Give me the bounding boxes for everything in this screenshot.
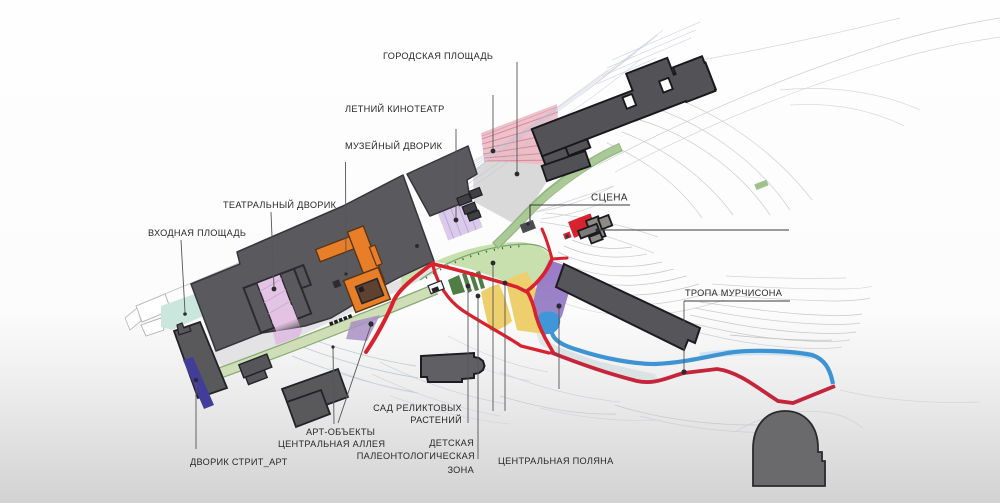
svg-text:МУЗЕЙНЫЙ ДВОРИК: МУЗЕЙНЫЙ ДВОРИК	[345, 140, 443, 151]
svg-text:ДЕТСКАЯ: ДЕТСКАЯ	[429, 438, 474, 448]
svg-text:ТРОПА МУРЧИСОНА: ТРОПА МУРЧИСОНА	[685, 288, 783, 298]
svg-text:ПАЛЕОНТОЛОГИЧЕСКАЯ: ПАЛЕОНТОЛОГИЧЕСКАЯ	[357, 451, 475, 461]
svg-text:ДВОРИК СТРИТ_АРТ: ДВОРИК СТРИТ_АРТ	[190, 457, 288, 467]
svg-text:ЦЕНТРАЛЬНАЯ ПОЛЯНА: ЦЕНТРАЛЬНАЯ ПОЛЯНА	[498, 456, 614, 466]
svg-text:АРТ-ОБЪЕКТЫ: АРТ-ОБЪЕКТЫ	[306, 427, 375, 437]
svg-text:ЛЕТНИЙ КИНОТЕАТР: ЛЕТНИЙ КИНОТЕАТР	[345, 103, 445, 114]
svg-text:ЗОНА: ЗОНА	[447, 465, 474, 475]
svg-text:ГОРОДСКАЯ ПЛОЩАДЬ: ГОРОДСКАЯ ПЛОЩАДЬ	[383, 51, 493, 61]
svg-text:ВХОДНАЯ ПЛОЩАДЬ: ВХОДНАЯ ПЛОЩАДЬ	[148, 228, 246, 238]
svg-text:ЦЕНТРАЛЬНАЯ АЛЛЕЯ: ЦЕНТРАЛЬНАЯ АЛЛЕЯ	[278, 439, 385, 449]
svg-text:САД РЕЛИКТОВЫХ: САД РЕЛИКТОВЫХ	[373, 403, 462, 413]
svg-text:ТЕАТРАЛЬНЫЙ ДВОРИК: ТЕАТРАЛЬНЫЙ ДВОРИК	[223, 199, 337, 210]
svg-text:РАСТЕНИЙ: РАСТЕНИЙ	[410, 414, 462, 425]
svg-text:СЦЕНА: СЦЕНА	[591, 193, 628, 204]
